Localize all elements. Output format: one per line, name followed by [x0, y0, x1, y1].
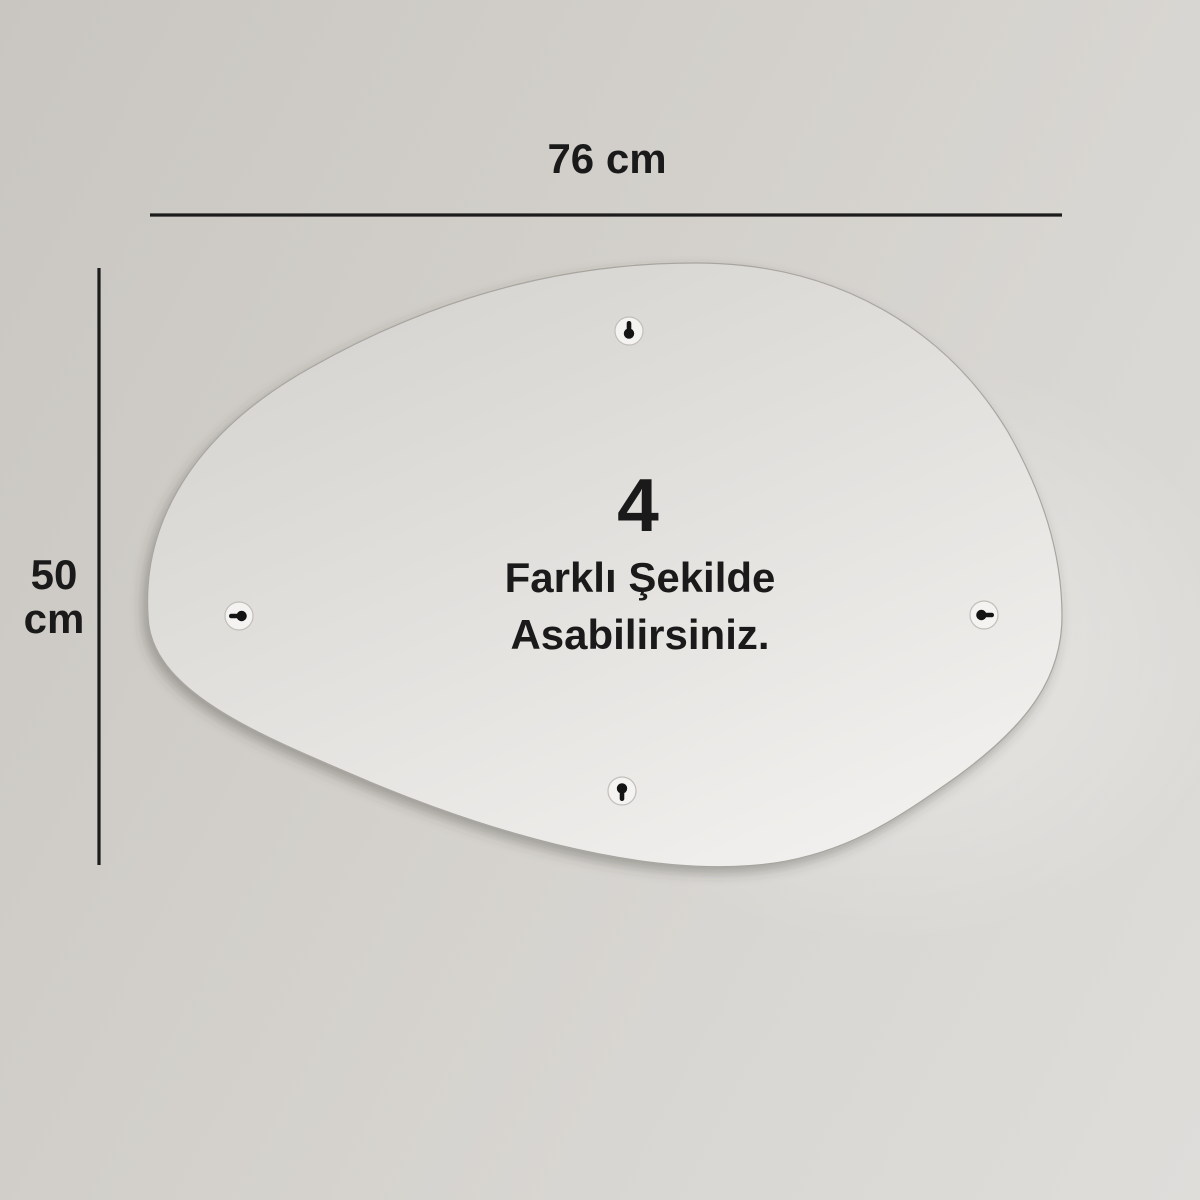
keyhole-left-icon	[225, 602, 253, 630]
keyhole-right-icon	[970, 601, 998, 629]
panel-caption-line-1: Farklı Şekilde	[440, 556, 840, 600]
width-dimension-label: 76 cm	[450, 136, 764, 182]
height-dimension-label: 50cm	[2, 553, 106, 641]
height-dimension-unit: cm	[24, 595, 85, 642]
height-dimension-value: 50	[31, 551, 78, 598]
keyhole-bottom-icon	[608, 777, 636, 805]
panel-caption-line-2: Asabilirsiniz.	[440, 613, 840, 657]
product-dimension-photo: { "dimensions": { "width_label": "76 cm"…	[0, 0, 1200, 1200]
panel-count: 4	[438, 466, 838, 544]
keyhole-top-icon	[615, 317, 643, 345]
